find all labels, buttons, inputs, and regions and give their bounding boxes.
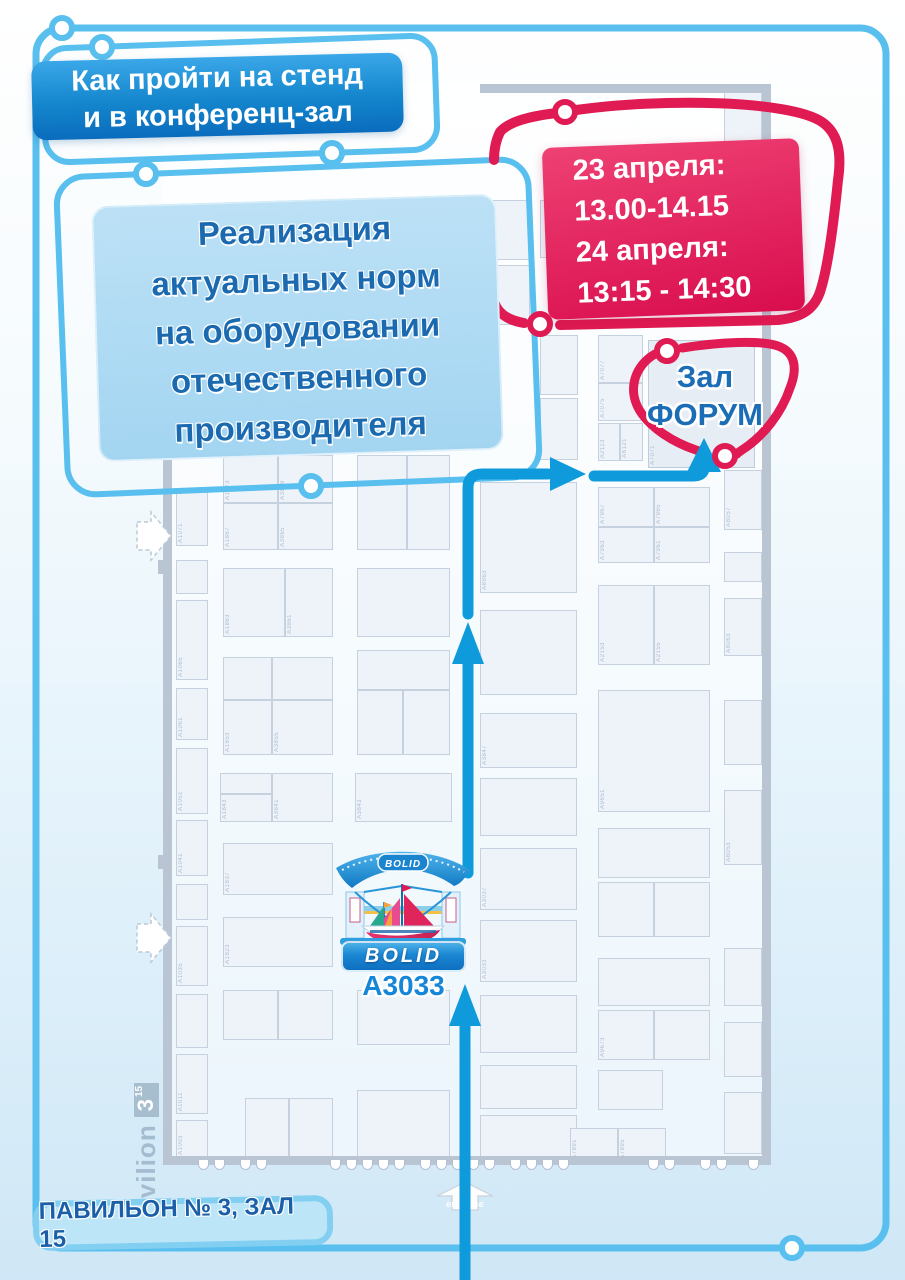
pavilion-number-box: 315 [134, 1083, 159, 1117]
bolid-booth-art: BOLID [332, 846, 474, 946]
text-line: производителя [174, 397, 428, 454]
bolid-sign: BOLID [341, 941, 466, 972]
forum-hall-label: Зал ФОРУМ [630, 358, 780, 434]
bottom-wall [163, 1156, 771, 1165]
text-line: на оборудовании [154, 299, 441, 357]
text-line: Реализация [197, 203, 392, 258]
stand-number: А3033 [341, 970, 466, 1002]
title-banner: Как пройти на стенд и в конференц-зал [31, 52, 404, 140]
schedule-panel: 23 апреля:13.00-14.1524 апреля:13:15 - 1… [542, 138, 805, 320]
session-topic-panel: Реализацияактуальных нормна оборудовании… [91, 194, 504, 463]
top-wall [480, 84, 771, 93]
entrance-label: entrance [446, 1199, 484, 1209]
booth-roof-logo: BOLID [385, 859, 421, 870]
main-entrance-icon: entrance [437, 1182, 493, 1210]
text-line: отечественного [170, 348, 428, 405]
text-line: 13:15 - 14:30 [577, 265, 805, 315]
pavilion-badge: ПАВИЛЬОН № 3, ЗАЛ 15 [33, 1195, 334, 1251]
title-line2: и в конференц-зал [83, 93, 354, 137]
